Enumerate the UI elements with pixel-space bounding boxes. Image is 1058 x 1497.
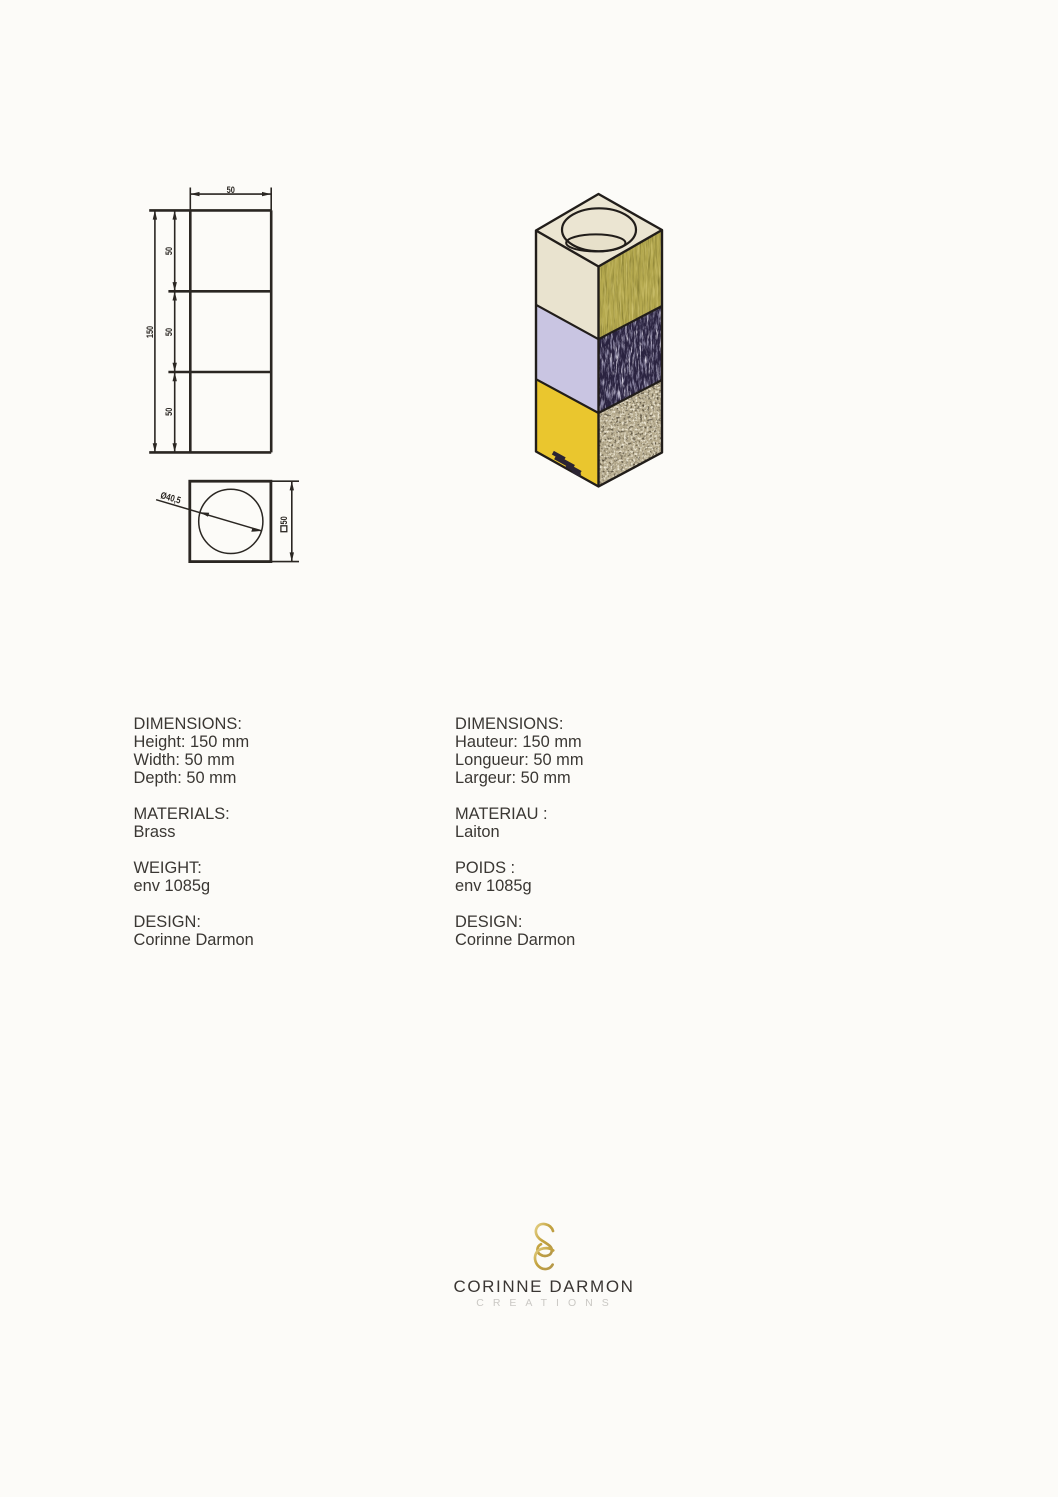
svg-text:150: 150 — [144, 326, 155, 339]
svg-text:50: 50 — [163, 328, 174, 336]
svg-text:50: 50 — [278, 516, 289, 524]
svg-text:50: 50 — [163, 247, 174, 255]
svg-text:50: 50 — [227, 184, 235, 195]
svg-text:50: 50 — [163, 407, 174, 415]
